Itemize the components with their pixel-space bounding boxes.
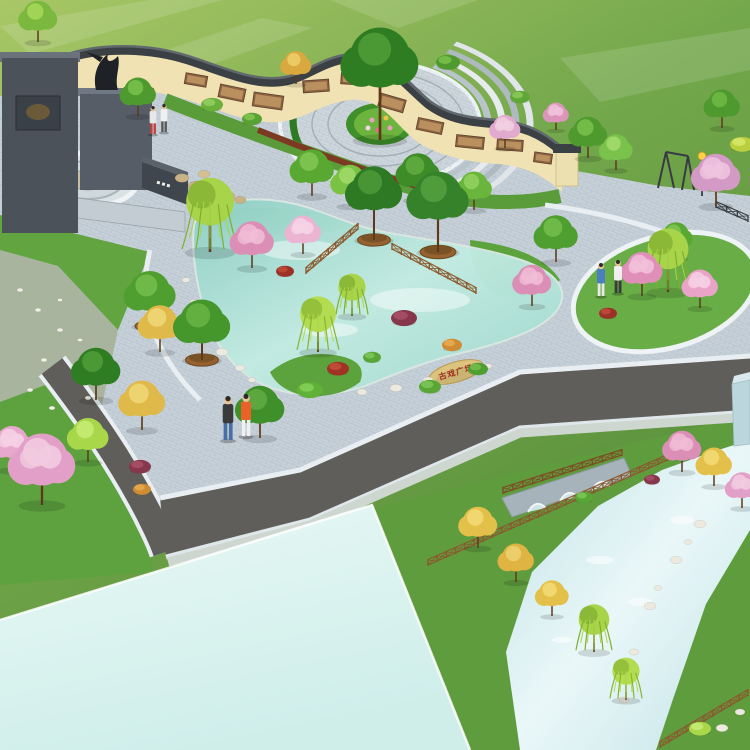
landscape-rendering: 古戏广场: [0, 0, 750, 750]
stone: [357, 389, 367, 395]
shrub: [644, 475, 660, 485]
stone: [17, 288, 23, 292]
shrub: [599, 308, 617, 319]
stone: [41, 358, 47, 362]
shrub: [575, 492, 593, 503]
stone: [684, 540, 692, 545]
stone: [694, 520, 706, 527]
stone: [78, 338, 83, 341]
shrub: [327, 362, 349, 376]
stone: [234, 196, 246, 203]
shrub: [436, 55, 460, 70]
stone: [198, 170, 210, 177]
stone: [235, 365, 245, 371]
shrub: [442, 339, 462, 351]
mural-panel: [533, 152, 552, 164]
shrub: [276, 266, 294, 277]
stone: [35, 308, 41, 312]
stone: [57, 328, 63, 332]
stone: [175, 174, 189, 183]
shrub: [419, 380, 441, 394]
stone: [182, 278, 190, 283]
monument-block: [2, 58, 78, 233]
shrub: [133, 484, 151, 495]
stone: [49, 406, 55, 410]
shrub: [129, 460, 151, 474]
stone: [716, 724, 728, 731]
stone: [216, 348, 228, 355]
shrub: [391, 310, 417, 326]
shrub: [297, 382, 323, 398]
shrub: [689, 722, 711, 736]
shrub: [363, 352, 381, 363]
mural-panel: [303, 79, 330, 93]
stone: [27, 388, 33, 392]
mural-panel: [455, 135, 484, 150]
stone: [644, 602, 656, 609]
stone: [58, 298, 63, 301]
shrub: [242, 113, 262, 125]
stone: [248, 378, 256, 383]
shrub: [510, 91, 530, 103]
stone: [735, 709, 745, 715]
stone: [670, 556, 682, 563]
park-plan-rendering: 古戏广场: [0, 0, 750, 750]
shrub: [468, 363, 488, 375]
bronze-relief: [26, 104, 50, 120]
shrub: [201, 98, 223, 112]
blue-structure: [732, 372, 750, 446]
stone: [629, 649, 639, 655]
stone: [390, 384, 402, 391]
wall-end-pier: [553, 144, 581, 186]
monument-wing: [80, 94, 152, 190]
stone: [654, 586, 662, 591]
